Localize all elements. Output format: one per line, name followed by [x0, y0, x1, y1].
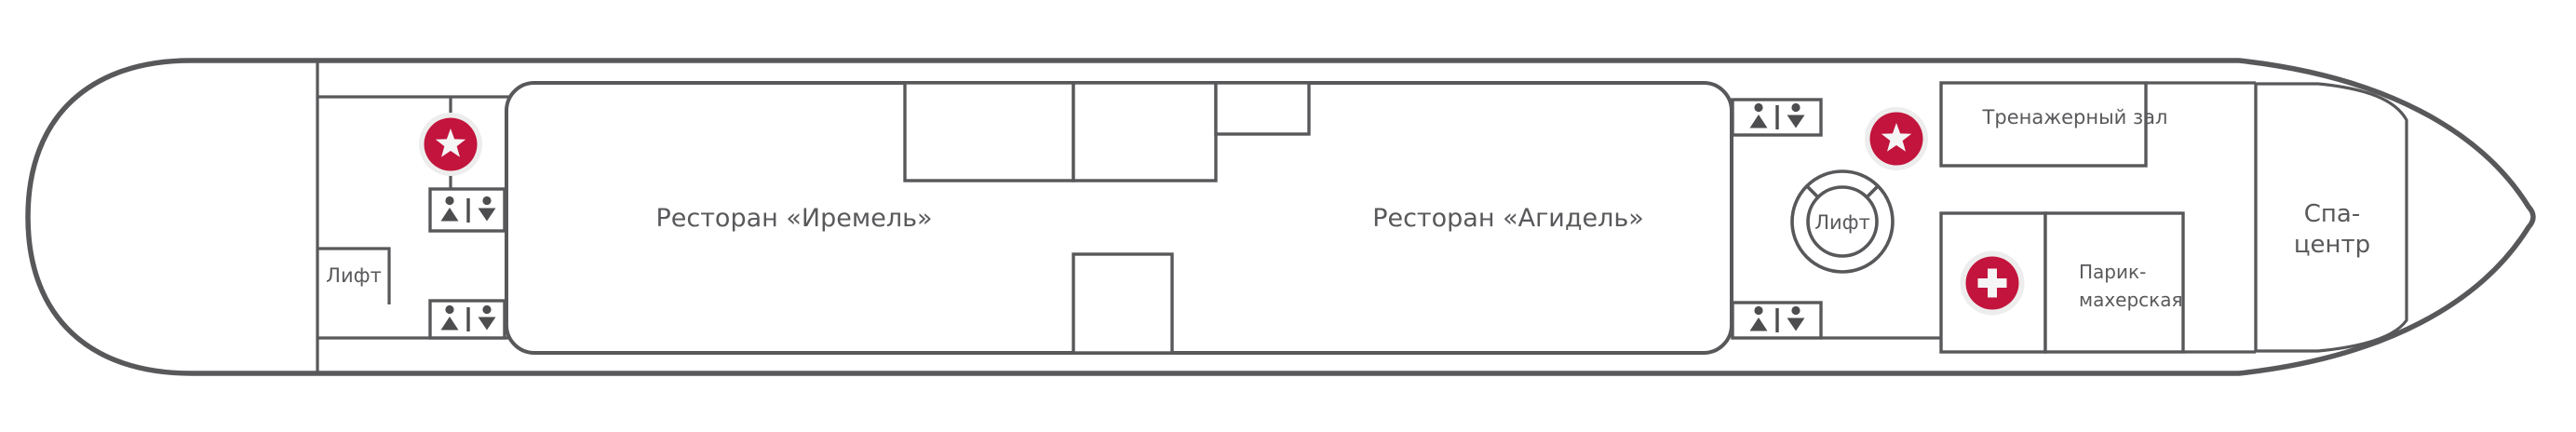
hall-service-box-2: [1073, 83, 1216, 181]
elevator-right-label: Лифт: [1814, 211, 1870, 234]
elevator-right[interactable]: Лифт: [1792, 171, 1893, 272]
deck-plan-canvas: Лифт Ресторан «Иремель» Ресторан «Агидел…: [0, 0, 2576, 432]
spa-label-line1: Спа-: [2304, 200, 2360, 228]
medical-cross-marker[interactable]: [1961, 251, 2025, 316]
star-marker-left[interactable]: [419, 113, 482, 176]
hall-service-box-4: [1073, 254, 1172, 353]
wc-men-women-icon: [441, 305, 496, 331]
gym-label: Тренажерный зал: [1982, 106, 2168, 128]
hairdresser-label-line2: махерская: [2079, 289, 2183, 311]
star-marker-right[interactable]: [1865, 107, 1928, 170]
wc-men-women-icon: [1750, 306, 1805, 332]
ship-deck-plan: Лифт Ресторан «Иремель» Ресторан «Агидел…: [0, 0, 2576, 432]
hall-service-box-3: [1216, 83, 1309, 134]
spa-label-line2: центр: [2294, 231, 2370, 259]
wc-men-women-icon: [441, 196, 496, 223]
wc-men-women-icon: [1750, 103, 1805, 129]
restaurant-iremel-label: Ресторан «Иремель»: [655, 204, 932, 233]
elevator-left-label: Лифт: [326, 264, 382, 287]
hall-service-box-1: [905, 83, 1073, 181]
hairdresser-label-line1: Парик-: [2079, 261, 2146, 283]
restaurant-agidel-label: Ресторан «Агидель»: [1372, 204, 1644, 233]
